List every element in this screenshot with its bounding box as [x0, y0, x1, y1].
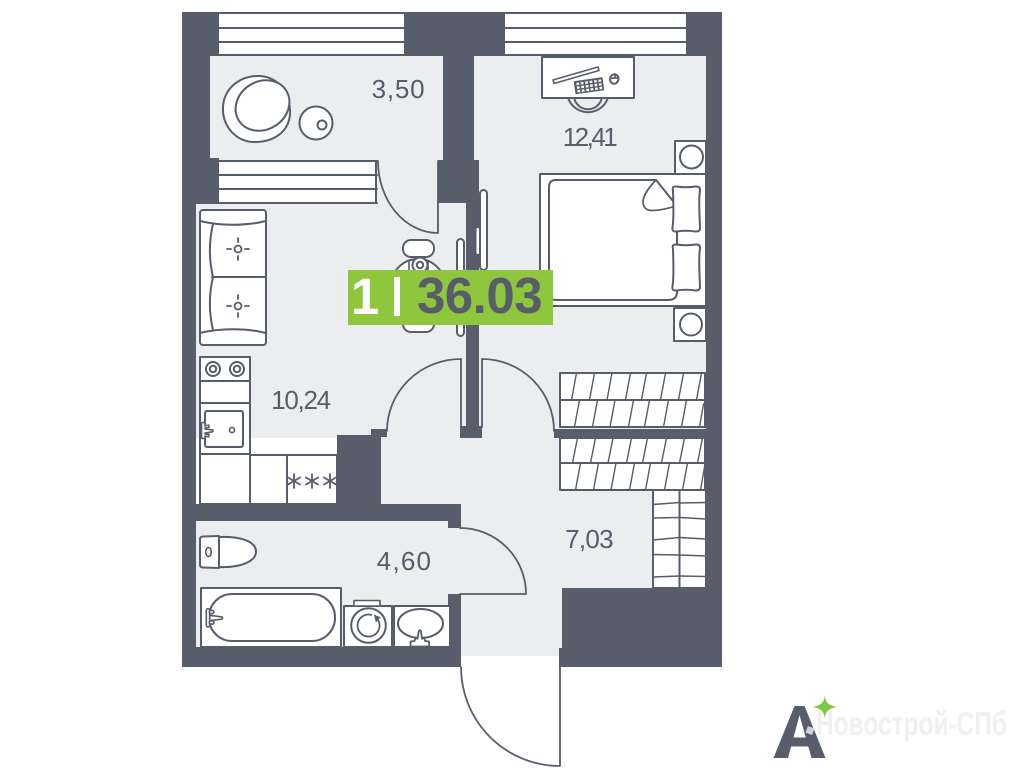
svg-text:Новострой-СПб: Новострой-СПб [816, 705, 1007, 742]
svg-text:12,41: 12,41 [563, 122, 618, 152]
svg-text:10,24: 10,24 [271, 385, 330, 415]
svg-text:7,03: 7,03 [565, 524, 613, 554]
svg-text:3,50: 3,50 [372, 74, 426, 104]
svg-text:36.03: 36.03 [417, 267, 542, 324]
svg-text:4,60: 4,60 [377, 546, 432, 576]
svg-text:1: 1 [351, 268, 379, 325]
